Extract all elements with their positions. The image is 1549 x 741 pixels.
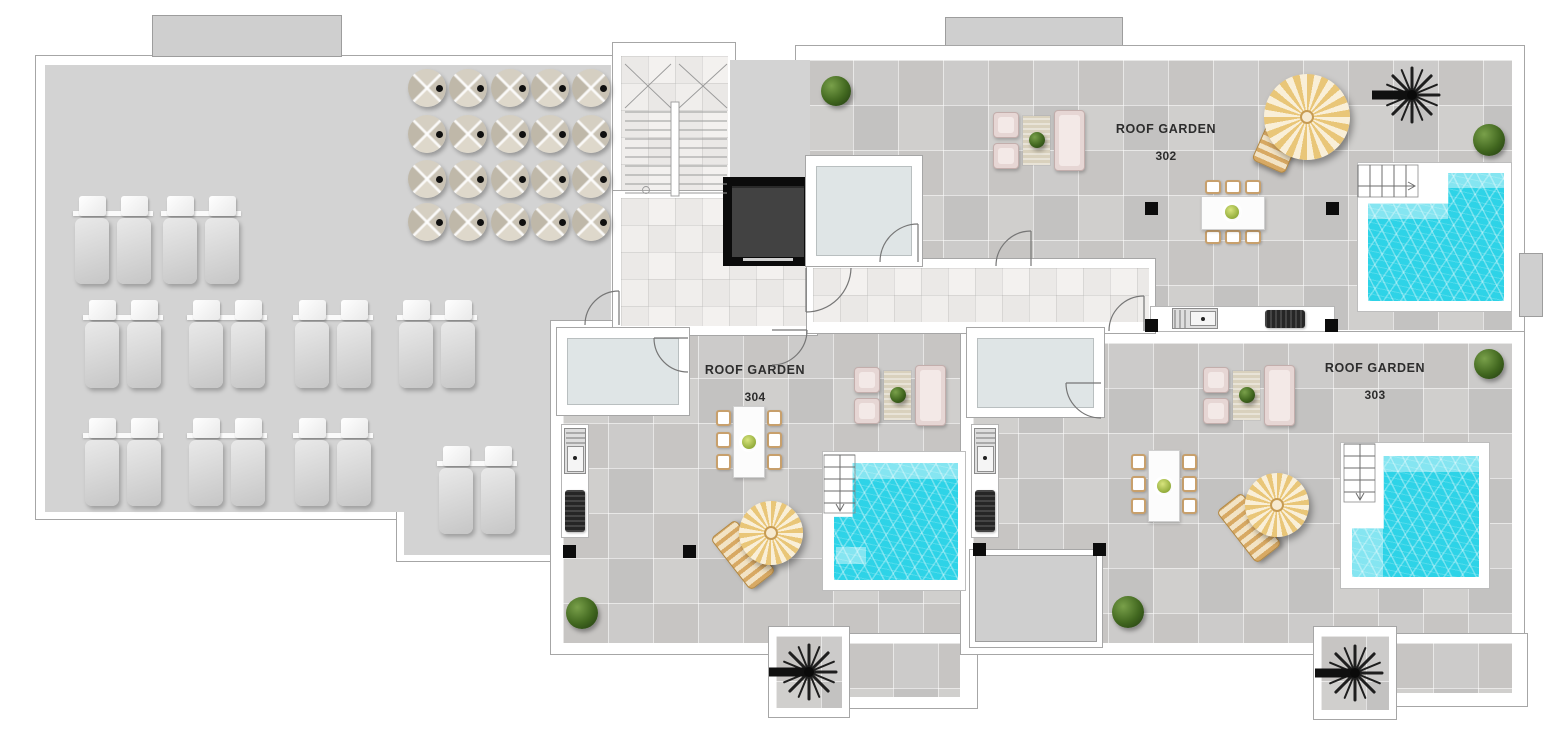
- sun-lounger: [399, 300, 433, 388]
- lounger-pillow: [443, 446, 470, 466]
- sun-lounger-pair: [437, 446, 517, 534]
- closed-parasol-table: [449, 160, 487, 198]
- lounger-bed: [205, 218, 239, 284]
- sun-lounger-pair: [73, 196, 153, 284]
- lounger-bed: [85, 440, 119, 506]
- pool-303-steps: [1352, 529, 1383, 577]
- closed-parasol-table: [572, 160, 610, 198]
- grill-303: [975, 490, 995, 532]
- lounger-bed: [189, 440, 223, 506]
- unit-302-ledge: [1519, 253, 1543, 317]
- lounger-pillow: [121, 196, 148, 216]
- sun-lounger-pair: [161, 196, 241, 284]
- lounger-bed: [399, 322, 433, 388]
- lounger-pillow: [235, 418, 262, 438]
- lounger-pillow: [209, 196, 236, 216]
- elevator-door: [743, 258, 793, 261]
- bush: [1112, 596, 1144, 628]
- unit-304-terrace-extension: [848, 643, 960, 697]
- lounger-bed: [231, 440, 265, 506]
- closed-parasol-table: [531, 69, 569, 107]
- lounger-pillow: [89, 418, 116, 438]
- sun-lounger: [127, 300, 161, 388]
- lounge-set-303: [1203, 365, 1295, 427]
- sink-302: [1172, 308, 1218, 329]
- potted-plant: [1239, 387, 1255, 403]
- unit-304-name: ROOF GARDEN: [675, 363, 835, 377]
- lounger-pillow: [485, 446, 512, 466]
- lounger-bed: [189, 322, 223, 388]
- armchair: [1203, 367, 1229, 393]
- lounger-bed: [439, 468, 473, 534]
- sun-lounger-pair: [187, 300, 267, 388]
- closed-parasol-table: [531, 160, 569, 198]
- pool-302-shallow: [1368, 204, 1448, 219]
- lounger-pillow: [79, 196, 106, 216]
- closed-parasol-table: [408, 115, 446, 153]
- structural-post: [973, 543, 986, 556]
- lounger-pillow: [299, 300, 326, 320]
- lounger-pillow: [341, 418, 368, 438]
- corridor: [813, 268, 1149, 322]
- unit-302-name: ROOF GARDEN: [1086, 122, 1246, 136]
- lounger-bed: [441, 322, 475, 388]
- closed-parasol-table: [491, 69, 529, 107]
- closed-parasol-table: [449, 115, 487, 153]
- sofa: [915, 365, 946, 426]
- unit-303-terrace-extension: [1388, 643, 1512, 693]
- sun-lounger: [85, 300, 119, 388]
- dining-chair: [716, 454, 731, 470]
- structural-post: [1093, 543, 1106, 556]
- closed-parasol-table: [491, 115, 529, 153]
- structural-post: [1326, 202, 1339, 215]
- access-box-304-glass: [567, 338, 679, 405]
- dining-chair: [767, 410, 782, 426]
- sink-tap: [573, 456, 577, 460]
- dining-chair: [716, 410, 731, 426]
- parasol-303: [1245, 473, 1309, 537]
- sun-lounger: [481, 446, 515, 534]
- sun-lounger: [231, 418, 265, 506]
- closed-parasol-table: [531, 203, 569, 241]
- sun-lounger: [337, 300, 371, 388]
- closed-parasol-table: [531, 115, 569, 153]
- access-box-303-glass: [977, 338, 1094, 408]
- roof-structure-left: [152, 15, 342, 57]
- pool-304-steps: [836, 547, 866, 564]
- lounger-bed: [75, 218, 109, 284]
- lounger-bed: [163, 218, 197, 284]
- unit-304-stairbox: [776, 636, 842, 708]
- closed-parasol-table: [572, 203, 610, 241]
- lounger-bed: [117, 218, 151, 284]
- dining-chair: [1225, 180, 1241, 194]
- elevator-cab: [732, 186, 804, 257]
- sink-tap: [983, 456, 987, 460]
- elevator: [723, 177, 813, 266]
- lounger-pillow: [193, 300, 220, 320]
- lounger-pillow: [403, 300, 430, 320]
- unit-303-number: 303: [1295, 388, 1455, 402]
- unit-303-stairbox: [1321, 636, 1389, 710]
- structural-post: [1145, 202, 1158, 215]
- unit-304-label: ROOF GARDEN 304: [675, 363, 835, 404]
- sun-lounger: [117, 196, 151, 284]
- sun-lounger: [205, 196, 239, 284]
- sun-lounger: [441, 300, 475, 388]
- armchair: [993, 143, 1019, 169]
- sun-lounger-pair: [293, 418, 373, 506]
- dining-chair: [1182, 454, 1197, 470]
- lower-roof: [975, 555, 1097, 642]
- dining-chair: [1131, 476, 1146, 492]
- closed-parasol-table: [449, 69, 487, 107]
- lounger-pillow: [445, 300, 472, 320]
- bush: [1473, 124, 1505, 156]
- lounger-bed: [481, 468, 515, 534]
- unit-302-number: 302: [1086, 149, 1246, 163]
- stairwell: [621, 56, 728, 196]
- dining-chair: [1205, 180, 1221, 194]
- armchair: [993, 112, 1019, 138]
- armchair: [854, 398, 880, 424]
- closed-parasol-table: [408, 203, 446, 241]
- sink-drainboard: [976, 430, 995, 444]
- sofa: [1054, 110, 1085, 171]
- grill-302: [1265, 310, 1305, 328]
- lounger-bed: [295, 322, 329, 388]
- dining-set-304: [716, 404, 782, 480]
- unit-302-label: ROOF GARDEN 302: [1086, 122, 1246, 163]
- sofa: [1264, 365, 1295, 426]
- access-box-302-glass: [816, 166, 912, 256]
- structural-post: [1145, 319, 1158, 332]
- lounger-bed: [127, 322, 161, 388]
- lounger-pillow: [131, 300, 158, 320]
- sink-303: [974, 428, 996, 474]
- lounger-pillow: [131, 418, 158, 438]
- closed-parasol-table: [491, 203, 529, 241]
- sun-lounger: [295, 300, 329, 388]
- table-plant: [1225, 205, 1239, 219]
- table-plant: [1157, 479, 1171, 493]
- sun-lounger: [439, 446, 473, 534]
- sun-lounger-pair: [83, 418, 163, 506]
- sink-drainboard: [566, 430, 585, 444]
- sun-lounger: [189, 418, 223, 506]
- dining-chair: [1182, 476, 1197, 492]
- sun-lounger: [337, 418, 371, 506]
- sun-lounger: [295, 418, 329, 506]
- sun-lounger: [163, 196, 197, 284]
- sink-304: [564, 428, 586, 474]
- sun-lounger: [189, 300, 223, 388]
- lounge-set-302: [993, 110, 1085, 172]
- grill-304: [565, 490, 585, 532]
- bush: [821, 76, 851, 106]
- lounger-bed: [127, 440, 161, 506]
- lounger-bed: [85, 322, 119, 388]
- sink-drainboard: [1174, 310, 1188, 328]
- sink-tap: [1201, 317, 1205, 321]
- lounger-bed: [295, 440, 329, 506]
- dining-chair: [1225, 230, 1241, 244]
- dining-chair: [1245, 230, 1261, 244]
- dining-chair: [1205, 230, 1221, 244]
- structural-post: [563, 545, 576, 558]
- lounger-pillow: [299, 418, 326, 438]
- sun-lounger: [75, 196, 109, 284]
- potted-plant: [1029, 132, 1045, 148]
- unit-303-label: ROOF GARDEN 303: [1295, 361, 1455, 402]
- parasol-304: [739, 501, 803, 565]
- sun-lounger-pair: [83, 300, 163, 388]
- armchair: [854, 367, 880, 393]
- table-plant: [742, 435, 756, 449]
- lounger-bed: [337, 322, 371, 388]
- sun-lounger: [127, 418, 161, 506]
- lounger-pillow: [89, 300, 116, 320]
- lounge-set-304: [854, 365, 946, 427]
- dining-chair: [716, 432, 731, 448]
- lounger-pillow: [235, 300, 262, 320]
- bush: [566, 597, 598, 629]
- closed-parasol-table: [408, 160, 446, 198]
- dining-chair: [1131, 454, 1146, 470]
- dining-chair: [1131, 498, 1146, 514]
- unit-304-number: 304: [675, 390, 835, 404]
- sun-lounger: [231, 300, 265, 388]
- closed-parasol-table: [449, 203, 487, 241]
- structural-post: [683, 545, 696, 558]
- roof-floor-plan: ROOF GARDEN 302 ROOF GARDEN 303 ROOF GAR…: [0, 0, 1549, 741]
- dining-set-302: [1197, 180, 1267, 244]
- sun-lounger-pair: [293, 300, 373, 388]
- lounger-pillow: [193, 418, 220, 438]
- bush: [1474, 349, 1504, 379]
- dining-chair: [1245, 180, 1261, 194]
- closed-parasol-table: [572, 69, 610, 107]
- structural-post: [1325, 319, 1338, 332]
- dining-set-303: [1131, 448, 1197, 524]
- closed-parasol-table: [491, 160, 529, 198]
- core-roof-patch: [730, 60, 810, 178]
- pool-303-shallow: [1384, 456, 1479, 472]
- sun-lounger: [85, 418, 119, 506]
- unit-303-name: ROOF GARDEN: [1295, 361, 1455, 375]
- sun-lounger-pair: [397, 300, 477, 388]
- lounger-bed: [231, 322, 265, 388]
- dining-chair: [767, 432, 782, 448]
- dining-chair: [1182, 498, 1197, 514]
- pool-304-shallow: [852, 463, 958, 479]
- pool-302-shallow: [1448, 173, 1504, 188]
- lounger-bed: [337, 440, 371, 506]
- armchair: [1203, 398, 1229, 424]
- dining-chair: [767, 454, 782, 470]
- potted-plant: [890, 387, 906, 403]
- sun-lounger-pair: [187, 418, 267, 506]
- closed-parasol-table: [408, 69, 446, 107]
- closed-parasol-table: [572, 115, 610, 153]
- lounger-pillow: [167, 196, 194, 216]
- lounger-pillow: [341, 300, 368, 320]
- parasol-302: [1264, 74, 1350, 160]
